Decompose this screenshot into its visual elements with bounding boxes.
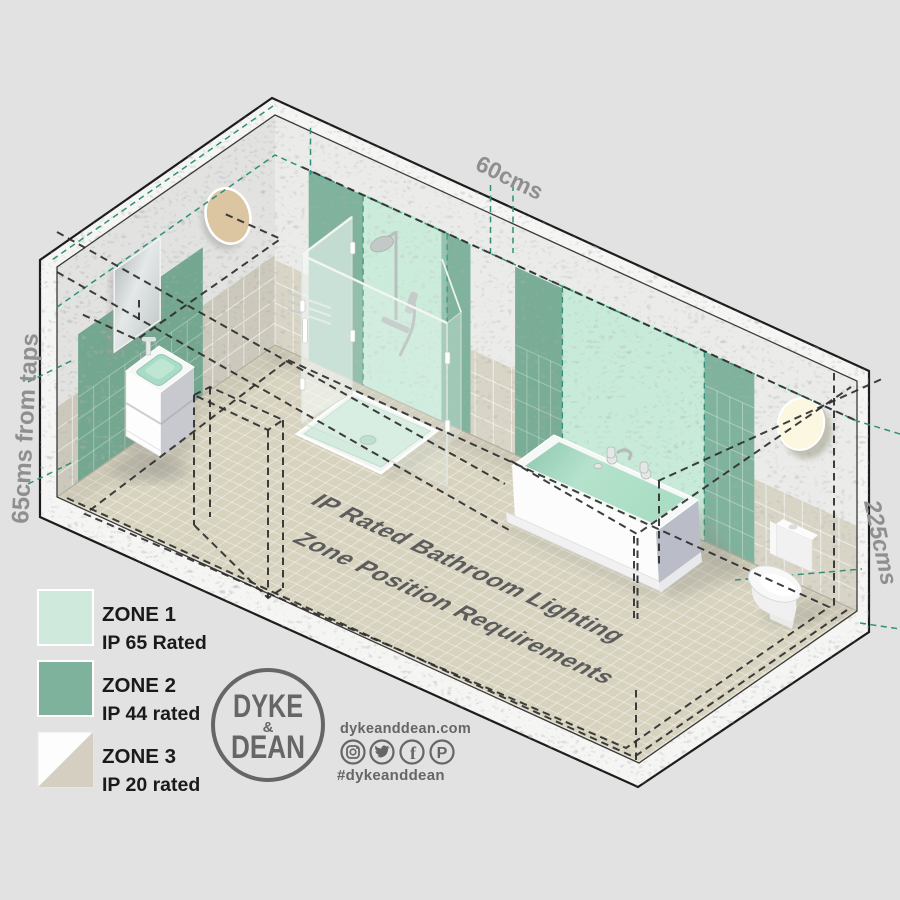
svg-text:ZONE 3: ZONE 3 [102, 745, 176, 768]
svg-text:#dykeanddean: #dykeanddean [337, 767, 445, 784]
svg-text:ZONE 2: ZONE 2 [102, 674, 176, 697]
svg-text:DEAN: DEAN [231, 729, 305, 765]
svg-text:f: f [410, 743, 417, 763]
svg-text:IP 65 Rated: IP 65 Rated [102, 632, 207, 654]
svg-text:ZONE 1: ZONE 1 [102, 603, 176, 626]
svg-text:dykeanddean.com: dykeanddean.com [340, 721, 471, 737]
svg-text:IP 44 rated: IP 44 rated [102, 703, 200, 725]
svg-text:IP 20 rated: IP 20 rated [102, 774, 200, 796]
svg-text:P: P [437, 745, 448, 762]
